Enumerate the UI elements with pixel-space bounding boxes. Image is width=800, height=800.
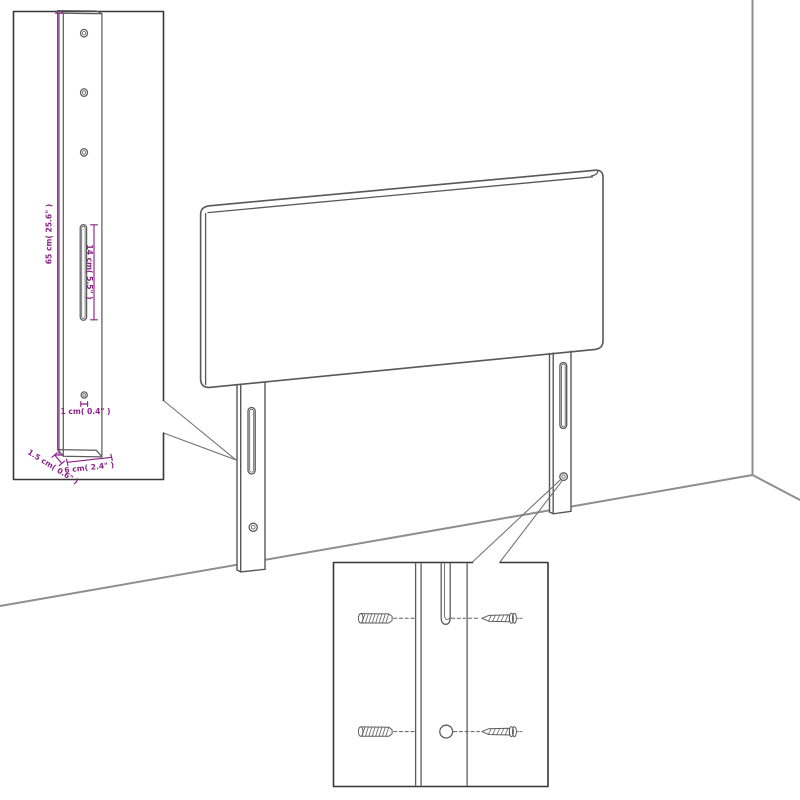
panel-top-edge-line (208, 177, 593, 213)
leg-hole-middle (81, 89, 88, 97)
leg-hole-lower (81, 149, 88, 157)
headboard-assembly-diagram: 65 cm( 25.6" ) 14 cm( 5.5" ) 1 cm( 0.4" … (0, 0, 800, 800)
dimension-height-label: 65 cm( 25.6" ) (45, 204, 54, 265)
leg-callout-leader-lines (164, 401, 236, 460)
callout-box-mounting-detail (334, 563, 549, 787)
screw-icon (482, 727, 524, 737)
headboard-left-leg (237, 382, 265, 572)
headboard-panel (201, 170, 603, 387)
room-corner (0, 0, 800, 606)
dimension-hole-label: 1 cm( 0.4" ) (61, 407, 111, 416)
floor-line-right (753, 475, 800, 500)
wall-plug-icon (358, 727, 392, 736)
panel-corner-curl (592, 171, 598, 176)
leg-closeup-hole (440, 725, 453, 738)
wall-plug-icon (358, 614, 392, 623)
screw-icon (482, 613, 524, 623)
leg-small-hole (81, 392, 87, 398)
callout-box-leg-detail: 65 cm( 25.6" ) 14 cm( 5.5" ) 1 cm( 0.4" … (14, 11, 164, 486)
dimension-height-65cm (55, 13, 62, 455)
diagram-canvas: 65 cm( 25.6" ) 14 cm( 5.5" ) 1 cm( 0.4" … (0, 0, 800, 800)
leg-closeup-slot (441, 563, 450, 624)
dimension-slot-label: 14 cm( 5.5" ) (85, 244, 94, 299)
headboard-right-leg (550, 351, 572, 514)
leg-hole-top (81, 29, 88, 37)
dimension-width-label: 6 cm( 2.4" ) (64, 460, 115, 475)
floor-line-left (0, 475, 753, 606)
leg-detail-drawing (58, 11, 102, 457)
leg-closeup-drawing (416, 563, 468, 787)
dimension-hole-1cm (81, 402, 88, 407)
